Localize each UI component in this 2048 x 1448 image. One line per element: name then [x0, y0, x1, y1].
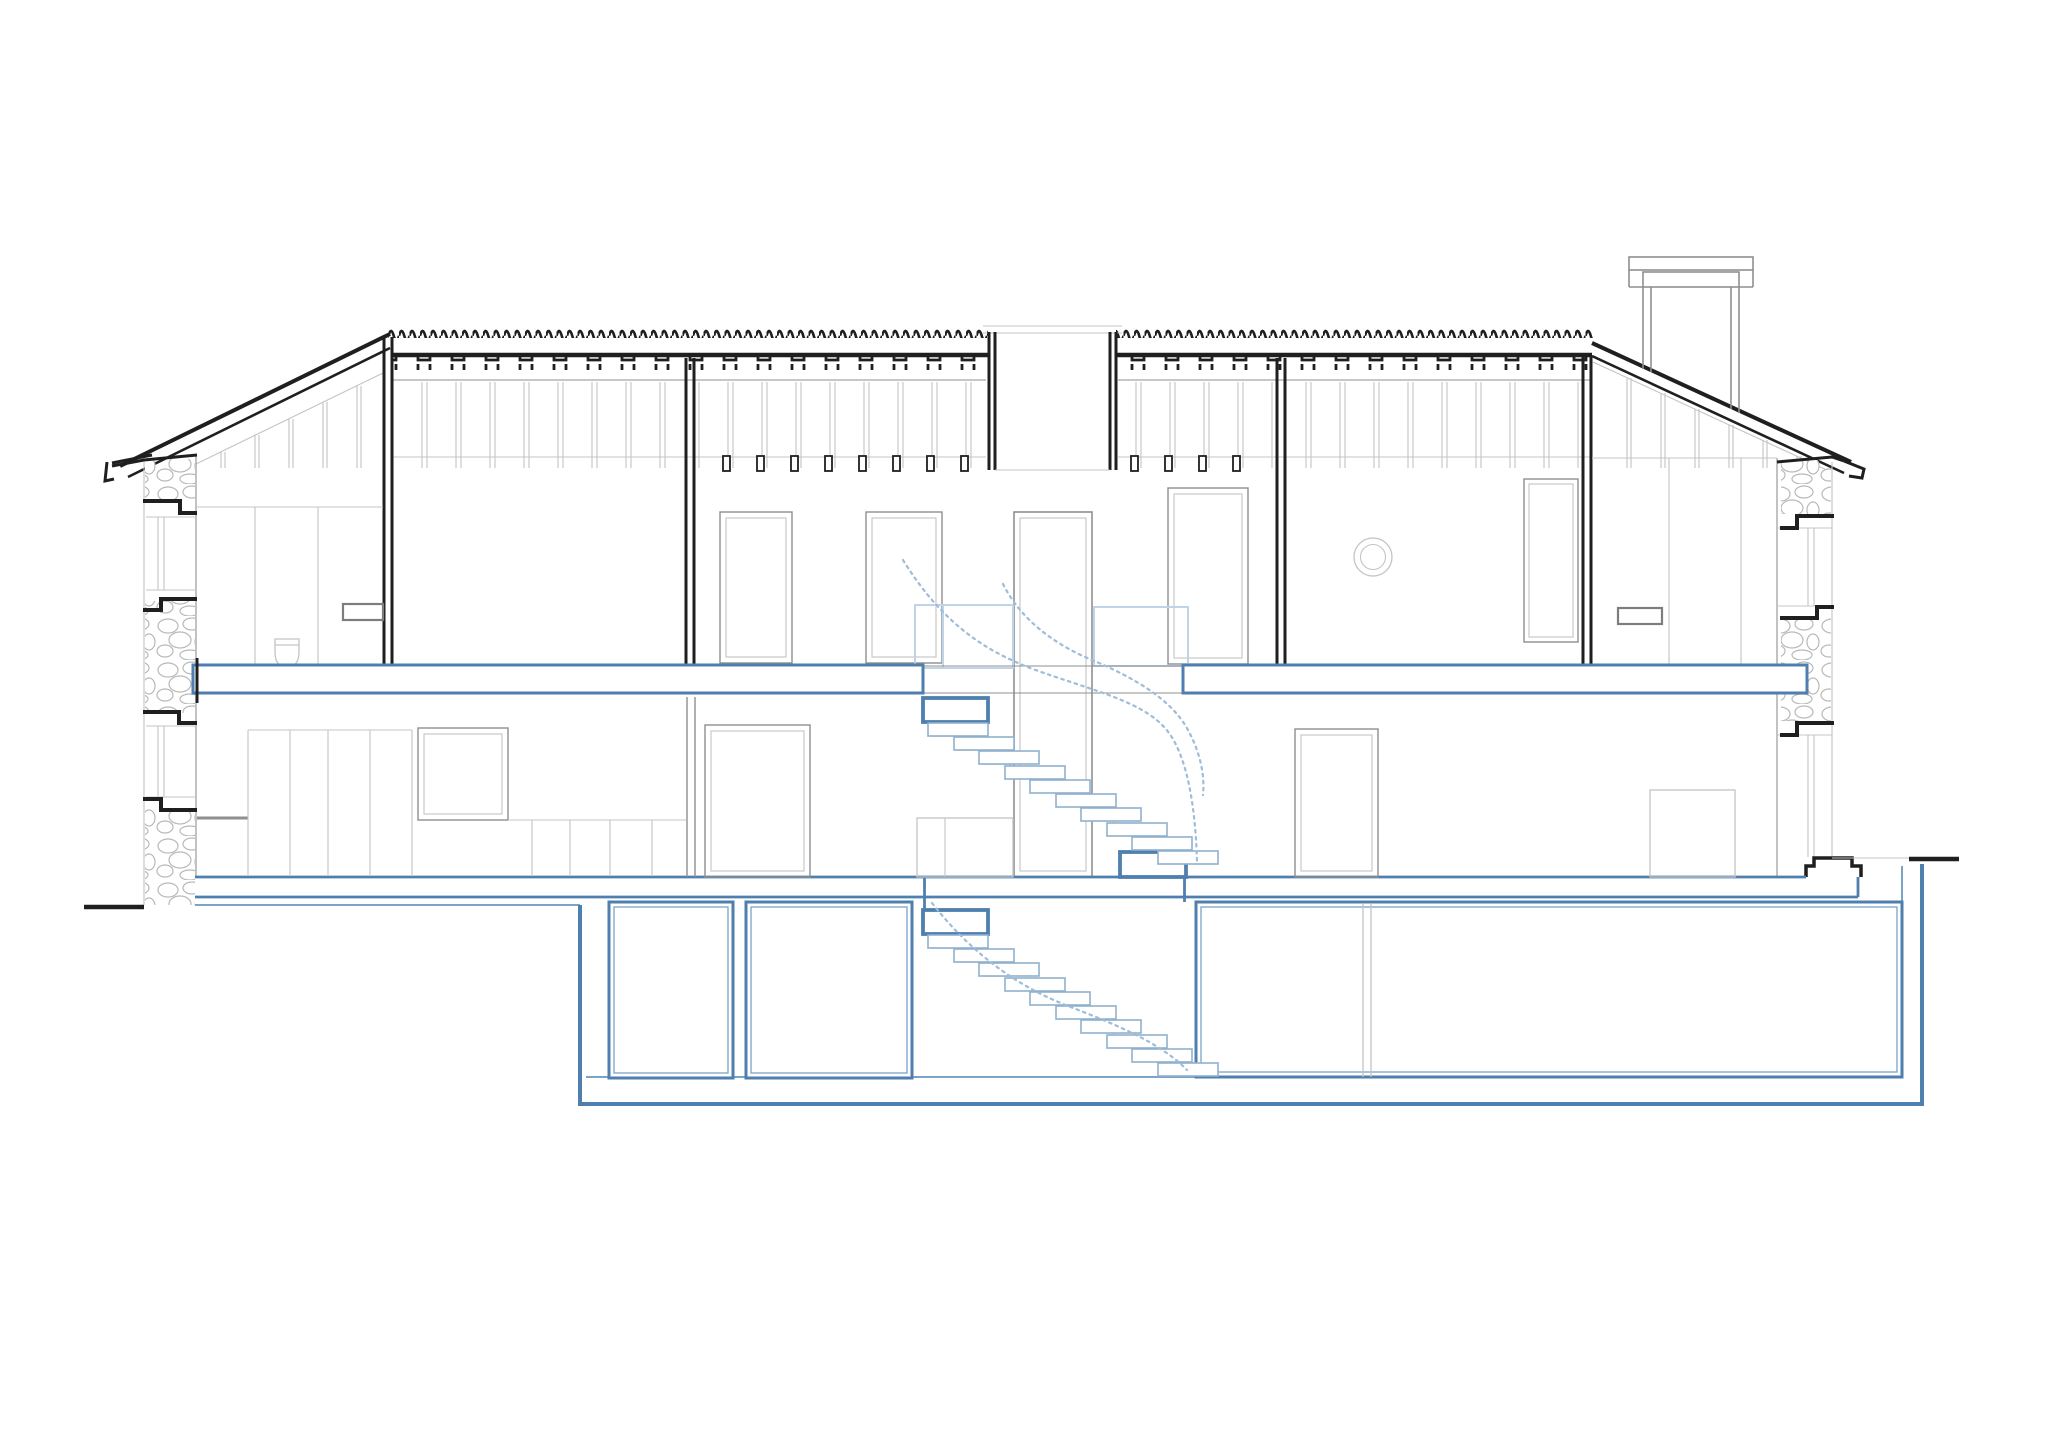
basement-room-large	[1196, 902, 1902, 1077]
toilet	[275, 639, 299, 667]
site-ground	[84, 858, 1959, 907]
basement	[580, 864, 1922, 1104]
wall-shelf	[343, 604, 383, 620]
roof-tiles-left	[388, 329, 988, 342]
room-left	[197, 697, 695, 877]
terrace-step	[1806, 858, 1861, 877]
attic-framing	[196, 362, 1831, 472]
stair-landing-upper	[923, 698, 988, 722]
door	[720, 512, 792, 663]
stone-patch	[145, 459, 195, 499]
window	[1650, 790, 1735, 877]
stair-void-glass	[915, 605, 1188, 668]
stair-tall-window	[1014, 512, 1092, 877]
architectural-section-canvas	[0, 0, 2048, 1448]
round-window	[1354, 538, 1392, 576]
stair-profile-lower	[932, 948, 1166, 1074]
stair-treads-lower	[928, 935, 1218, 1076]
stone-patch	[1781, 460, 1831, 514]
cabinets	[508, 820, 686, 875]
window	[705, 725, 810, 877]
cupboard	[917, 818, 1013, 877]
door	[1168, 488, 1248, 664]
wall-shelf	[1618, 608, 1662, 624]
upper-slab-left	[193, 665, 923, 693]
ridge-skylight-shaft	[983, 326, 1122, 470]
exterior-wall-left	[112, 455, 197, 905]
room-right-centre	[1354, 479, 1578, 642]
door	[866, 512, 942, 663]
purlin-band-left	[391, 357, 988, 370]
glass-balustrade	[915, 605, 1013, 668]
section-drawing	[0, 0, 2048, 1448]
bedroom-right	[1592, 458, 1777, 665]
rafters-right-band	[1118, 382, 1592, 468]
bedroom-left	[197, 507, 383, 667]
upper-slab-right	[1183, 665, 1807, 693]
door	[1295, 729, 1378, 877]
partition-wall	[687, 697, 695, 877]
rafters-left-slope	[196, 373, 383, 468]
window	[418, 728, 508, 820]
basement-room	[609, 902, 733, 1078]
closet	[248, 730, 412, 875]
stone-patch	[145, 601, 195, 713]
wall-bedroom-left	[384, 337, 392, 665]
basement-room	[746, 902, 912, 1078]
roof-tiles-right	[1116, 329, 1594, 342]
floor-slabs	[193, 658, 1858, 934]
tall-window	[1524, 479, 1578, 642]
eave-gutter-right	[1844, 461, 1864, 478]
rafters-right-slope	[1593, 362, 1831, 472]
room-right	[1295, 729, 1735, 877]
purlin-band-right	[1116, 357, 1592, 370]
stone-patch	[145, 809, 195, 905]
